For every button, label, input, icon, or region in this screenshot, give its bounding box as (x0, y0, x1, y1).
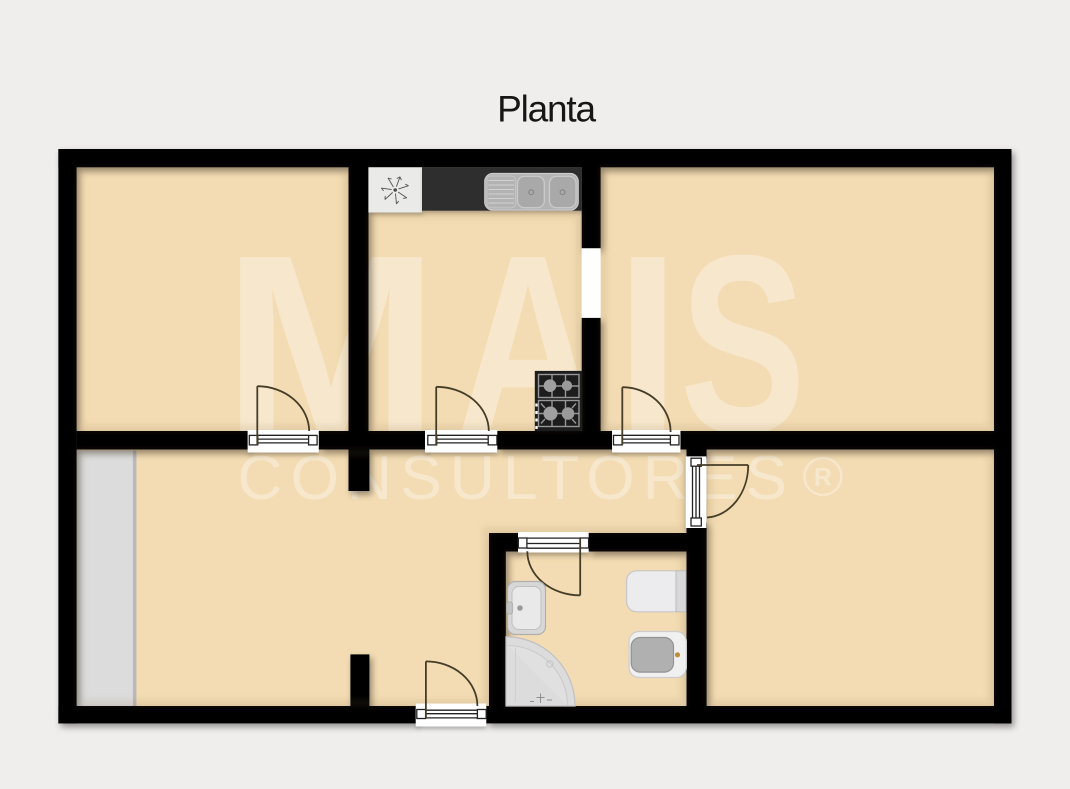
svg-text:R: R (814, 464, 832, 492)
svg-text:Planta: Planta (497, 89, 596, 130)
